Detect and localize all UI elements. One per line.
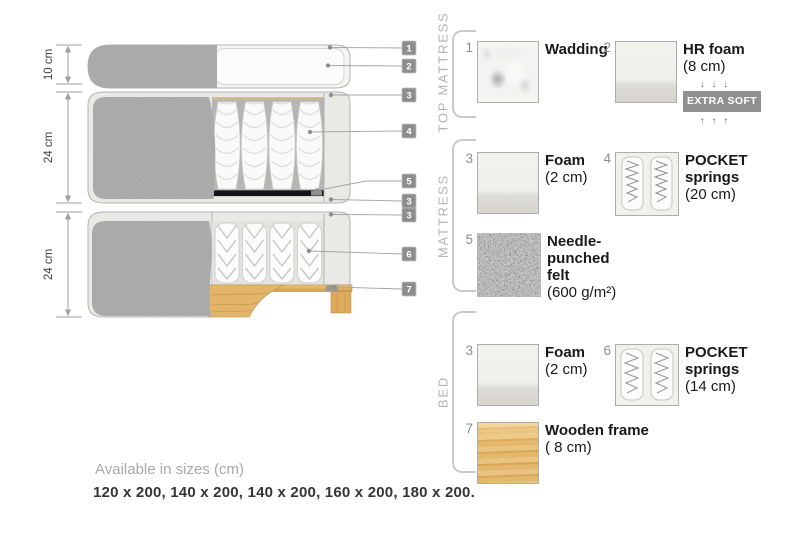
pocket-springs-photo: [615, 152, 679, 216]
legend-item-number: 6: [598, 343, 611, 358]
legend-item-label: Wooden frame ( 8 cm): [545, 422, 695, 456]
dimension-bed: 24 cm: [43, 212, 82, 317]
foam-photo: [615, 41, 677, 103]
section-title-bed: BED: [436, 376, 451, 408]
material-name: HR foam: [683, 41, 767, 58]
extra-soft-badge: EXTRA SOFT: [683, 91, 761, 112]
legend-item-number: 2: [598, 40, 611, 55]
legend-item-number: 1: [460, 40, 473, 55]
legend-item-pocket-springs-14: 6 POCKET springs (14 cm): [598, 344, 769, 408]
material-name: Needle-punched felt: [547, 233, 627, 284]
dimension-label: 24 cm: [43, 249, 55, 280]
section-title-top-mattress: TOP MATTRESS: [436, 11, 451, 132]
callout-number: 3: [406, 90, 411, 101]
material-size: (20 cm): [685, 186, 769, 203]
callout-number: 4: [406, 126, 412, 137]
material-name: POCKET springs: [685, 344, 769, 378]
callout-number: 1: [406, 43, 412, 54]
felt-photo: [477, 233, 541, 297]
wooden-leg: [331, 292, 351, 314]
dimension-label: 24 cm: [43, 132, 55, 163]
legend-item-number: 3: [460, 151, 473, 166]
legend-item-label: POCKET springs (20 cm): [685, 152, 769, 203]
dimension-mattress: 24 cm: [43, 92, 82, 203]
dimension-top-mattress: 10 cm: [43, 45, 82, 84]
fabric-cover: [93, 97, 215, 199]
legend-item-hr-foam: 2 HR foam (8 cm) ↓ ↓ ↓ EXTRA SOFT ↑ ↑ ↑: [598, 41, 767, 127]
foam-photo: [477, 344, 539, 406]
legend-item-number: 4: [598, 151, 611, 166]
legend-item-number: 3: [460, 343, 473, 358]
wadding-photo: [477, 41, 539, 103]
callout-number: 5: [406, 176, 412, 187]
legend-item-number: 5: [460, 232, 473, 247]
available-sizes: 120 x 200, 140 x 200, 140 x 200, 160 x 2…: [93, 484, 475, 501]
legend-item-wooden-frame: 7 Wooden frame ( 8 cm): [460, 422, 695, 484]
availability-note: Available in sizes (cm): [95, 461, 244, 478]
felt-layer: [212, 190, 324, 196]
mattress-infographic: 10 cm 24 cm 24 cm: [0, 0, 800, 533]
callout-number: 3: [406, 210, 411, 221]
arrows-down-icon: ↓ ↓ ↓: [683, 79, 747, 90]
material-size: (600 g/m²): [547, 284, 627, 301]
foam-photo: [477, 152, 539, 214]
legend-item-label: HR foam (8 cm) ↓ ↓ ↓ EXTRA SOFT ↑ ↑ ↑: [683, 41, 767, 127]
wooden-side-rail: [209, 285, 284, 317]
legend-item-felt: 5 Needle-punched felt (600 g/m²): [460, 233, 627, 301]
legend-item-pocket-springs-20: 4 POCKET springs (20 cm): [598, 152, 769, 216]
callout-number: 7: [406, 284, 411, 295]
material-name: POCKET springs: [685, 152, 769, 186]
bed-cross-section-diagram: 10 cm 24 cm 24 cm: [0, 0, 430, 533]
fabric-cover: [88, 45, 217, 88]
callout-number: 2: [406, 61, 411, 72]
dimension-label: 10 cm: [43, 49, 55, 80]
mattress-section: [88, 92, 350, 203]
fabric-cover: [92, 221, 212, 316]
pocket-springs-photo: [615, 344, 679, 408]
callout-number: 3: [406, 196, 411, 207]
quilting-line: [212, 97, 324, 99]
callout-number: 6: [406, 249, 411, 260]
bed-section: [88, 212, 352, 317]
section-title-mattress: MATTRESS: [436, 174, 451, 258]
legend-item-number: 7: [460, 421, 473, 436]
wood-photo: [477, 422, 539, 484]
top-mattress-section: [88, 45, 350, 88]
legend-item-label: Needle-punched felt (600 g/m²): [547, 233, 627, 301]
callout-badges: 1 2 3 4 5 3 3 6 7: [402, 41, 416, 296]
material-size: ( 8 cm): [545, 439, 695, 456]
material-name: Wooden frame: [545, 422, 695, 439]
material-size: (8 cm): [683, 58, 767, 75]
legend-item-label: POCKET springs (14 cm): [685, 344, 769, 395]
arrows-up-icon: ↑ ↑ ↑: [683, 116, 747, 127]
material-size: (14 cm): [685, 378, 769, 395]
